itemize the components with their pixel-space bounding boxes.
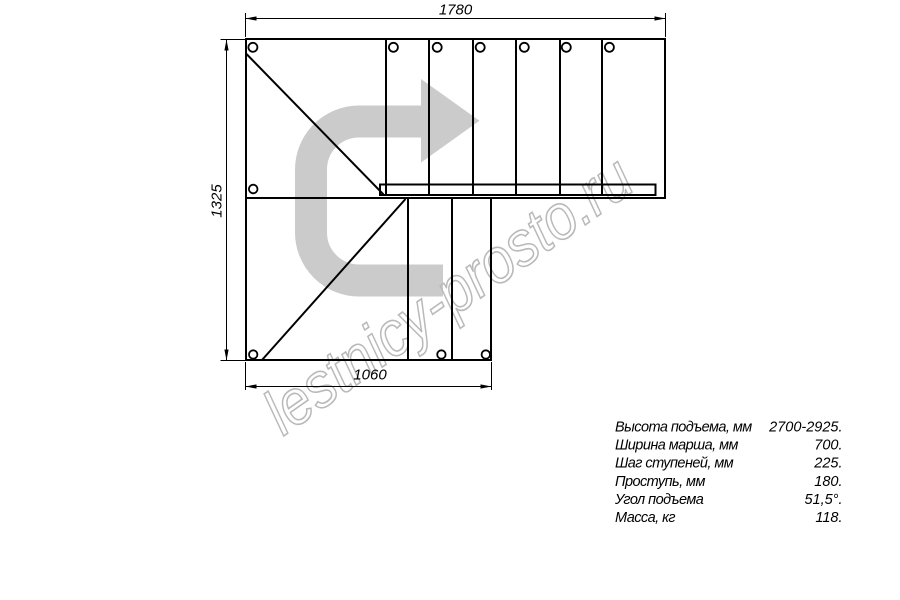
svg-text:1325: 1325 xyxy=(209,184,226,218)
svg-text:Масса, кг: Масса, кг xyxy=(615,510,675,526)
svg-text:225.: 225. xyxy=(813,456,842,472)
svg-text:180.: 180. xyxy=(814,474,842,490)
svg-text:1060: 1060 xyxy=(353,367,387,384)
svg-text:700.: 700. xyxy=(814,438,842,454)
svg-text:Высота подъема, мм: Высота подъема, мм xyxy=(615,420,752,436)
svg-text:Шаг ступеней, мм: Шаг ступеней, мм xyxy=(615,456,734,472)
svg-text:Угол подъема: Угол подъема xyxy=(614,492,704,508)
svg-text:Проступь, мм: Проступь, мм xyxy=(615,474,705,490)
svg-text:118.: 118. xyxy=(815,510,842,526)
svg-text:51,5°.: 51,5°. xyxy=(804,492,842,508)
svg-text:1780: 1780 xyxy=(439,2,473,19)
svg-text:Ширина марша, мм: Ширина марша, мм xyxy=(615,438,739,454)
svg-text:2700-2925.: 2700-2925. xyxy=(768,420,842,436)
